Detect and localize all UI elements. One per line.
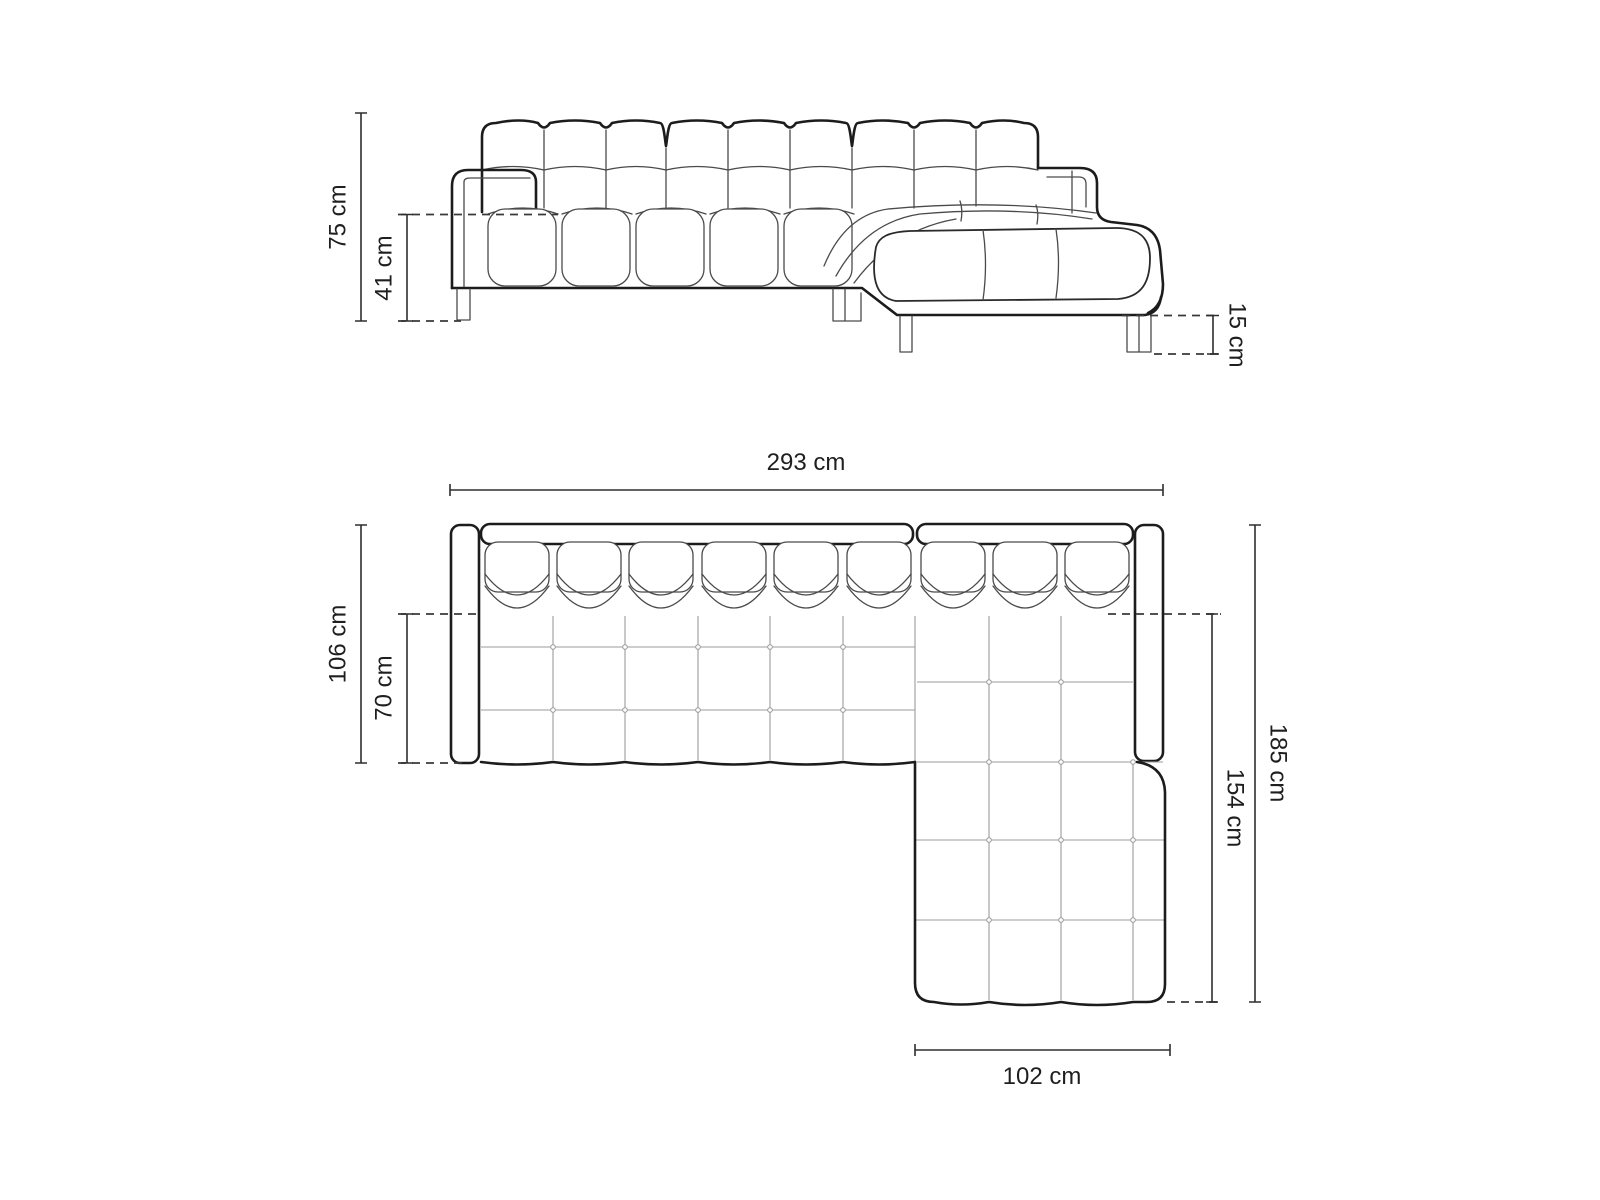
top-view: 106 cm 70 cm 154 cm 185 cm 102 cm <box>325 524 1292 1090</box>
front-seat-cushion <box>488 209 556 286</box>
dimension-label-seat-depth: 70 cm <box>371 655 398 720</box>
front-backrest-tuft-horizontal <box>482 167 1038 171</box>
front-sofa <box>452 121 1163 353</box>
top-chaise-outline <box>915 762 1165 1005</box>
tuft-button <box>1131 760 1136 765</box>
top-main-front-edge <box>481 762 915 765</box>
dimension-line <box>450 484 1163 496</box>
tuft-button <box>987 760 992 765</box>
tuft-button <box>987 918 992 923</box>
top-dim-total-depth: 106 cm <box>325 525 368 763</box>
top-backrest-chaise <box>917 524 1133 544</box>
dimension-label-seat-height: 41 cm <box>371 235 398 300</box>
front-leg-left <box>457 289 470 320</box>
front-right-armrest-inner-lines <box>1047 171 1086 213</box>
front-view: 75 cm 41 cm 15 cm <box>325 113 1251 368</box>
tuft-button <box>1059 680 1064 685</box>
top-backrest-main <box>481 524 913 544</box>
tuft-button <box>1059 838 1064 843</box>
front-leg-chaise-left <box>900 316 912 352</box>
dimension-label-total-depth: 106 cm <box>325 605 352 684</box>
dimension-line <box>355 113 367 321</box>
tuft-button <box>768 708 773 713</box>
tuft-button <box>623 708 628 713</box>
tuft-button <box>1059 760 1064 765</box>
tuft-button <box>623 645 628 650</box>
sofa-dimension-diagram: 75 cm 41 cm 15 cm 293 cm <box>0 0 1600 1200</box>
front-leg-middle <box>833 289 861 321</box>
top-dim-total-length: 185 cm <box>1249 525 1292 1002</box>
top-dim-total-width: 293 cm <box>450 449 1163 496</box>
front-leg-chaise-right <box>1127 316 1151 352</box>
dimension-line <box>1206 614 1218 1002</box>
tuft-button <box>1131 838 1136 843</box>
dimension-line <box>355 525 367 763</box>
front-seat-cushion <box>562 209 630 286</box>
tuft-button <box>841 645 846 650</box>
tuft-button <box>768 645 773 650</box>
front-seat-cushion <box>784 209 852 286</box>
tuft-button <box>696 708 701 713</box>
tuft-button <box>841 708 846 713</box>
front-chaise-cushion <box>874 228 1150 301</box>
dimension-label-total-width: 293 cm <box>767 449 846 476</box>
tuft-button <box>1059 918 1064 923</box>
dimension-line <box>1249 525 1261 1002</box>
front-seat-cushion <box>710 209 778 286</box>
front-dim-leg-height: 15 cm <box>1122 302 1251 367</box>
front-dim-total-height: 75 cm <box>325 113 368 321</box>
top-dim-chaise-length: 154 cm <box>1108 614 1249 1002</box>
dimension-line <box>401 614 413 763</box>
dimension-label-total-length: 185 cm <box>1265 724 1292 803</box>
tuft-button <box>696 645 701 650</box>
top-back-cushions <box>485 542 1129 608</box>
extension-line <box>1122 316 1219 355</box>
dimension-label-total-height: 75 cm <box>325 184 352 249</box>
tuft-button <box>987 838 992 843</box>
diagram-canvas: 75 cm 41 cm 15 cm 293 cm <box>0 0 1600 1200</box>
tuft-button <box>987 680 992 685</box>
top-right-armrest <box>1135 525 1163 761</box>
dimension-label-leg-height: 15 cm <box>1224 302 1251 367</box>
dimension-line <box>401 215 413 322</box>
tuft-button <box>1131 918 1136 923</box>
top-seat-grid <box>481 616 1165 1000</box>
dimension-label-chaise-length: 154 cm <box>1222 769 1249 848</box>
dimension-line <box>1207 316 1219 355</box>
front-seat-cushion <box>636 209 704 286</box>
dimension-label-chaise-width: 102 cm <box>1003 1063 1082 1090</box>
top-dim-chaise-width: 102 cm <box>915 1044 1170 1090</box>
top-sofa <box>451 524 1165 1005</box>
tuft-button <box>551 708 556 713</box>
dimension-line <box>915 1044 1170 1056</box>
tuft-button <box>551 645 556 650</box>
top-left-armrest <box>451 525 479 763</box>
